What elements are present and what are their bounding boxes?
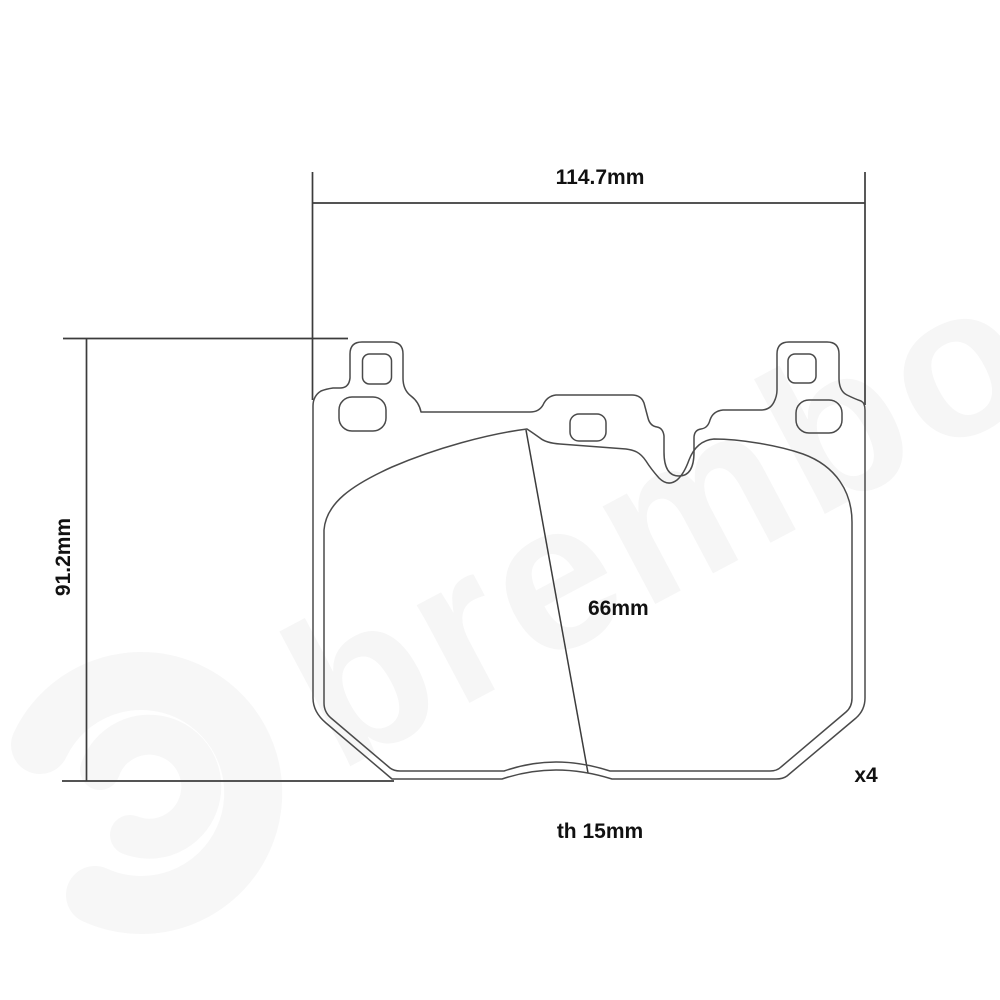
height-dimension-label: 91.2mm [52,518,76,596]
brembo-disc-logo-watermark [40,681,253,905]
right-ear-large-hole [796,400,842,433]
thickness-label: th 15mm [480,820,720,844]
technical-drawing-canvas: brembo 114.7mm 91.2mm [0,0,1000,1000]
quantity-label: x4 [840,764,892,788]
center-tab-hole [570,414,606,441]
brake-pad-diagram [0,0,1000,1000]
left-ear-small-hole [363,354,392,384]
pad-height-dimension-line [526,430,588,773]
brake-pad-outline [313,342,865,779]
right-ear-small-hole [788,354,816,383]
left-ear-large-hole [339,397,386,431]
width-dimension-label: 114.7mm [480,166,720,190]
backplate-outline [313,342,865,779]
pad-height-dimension-label: 66mm [588,597,649,621]
